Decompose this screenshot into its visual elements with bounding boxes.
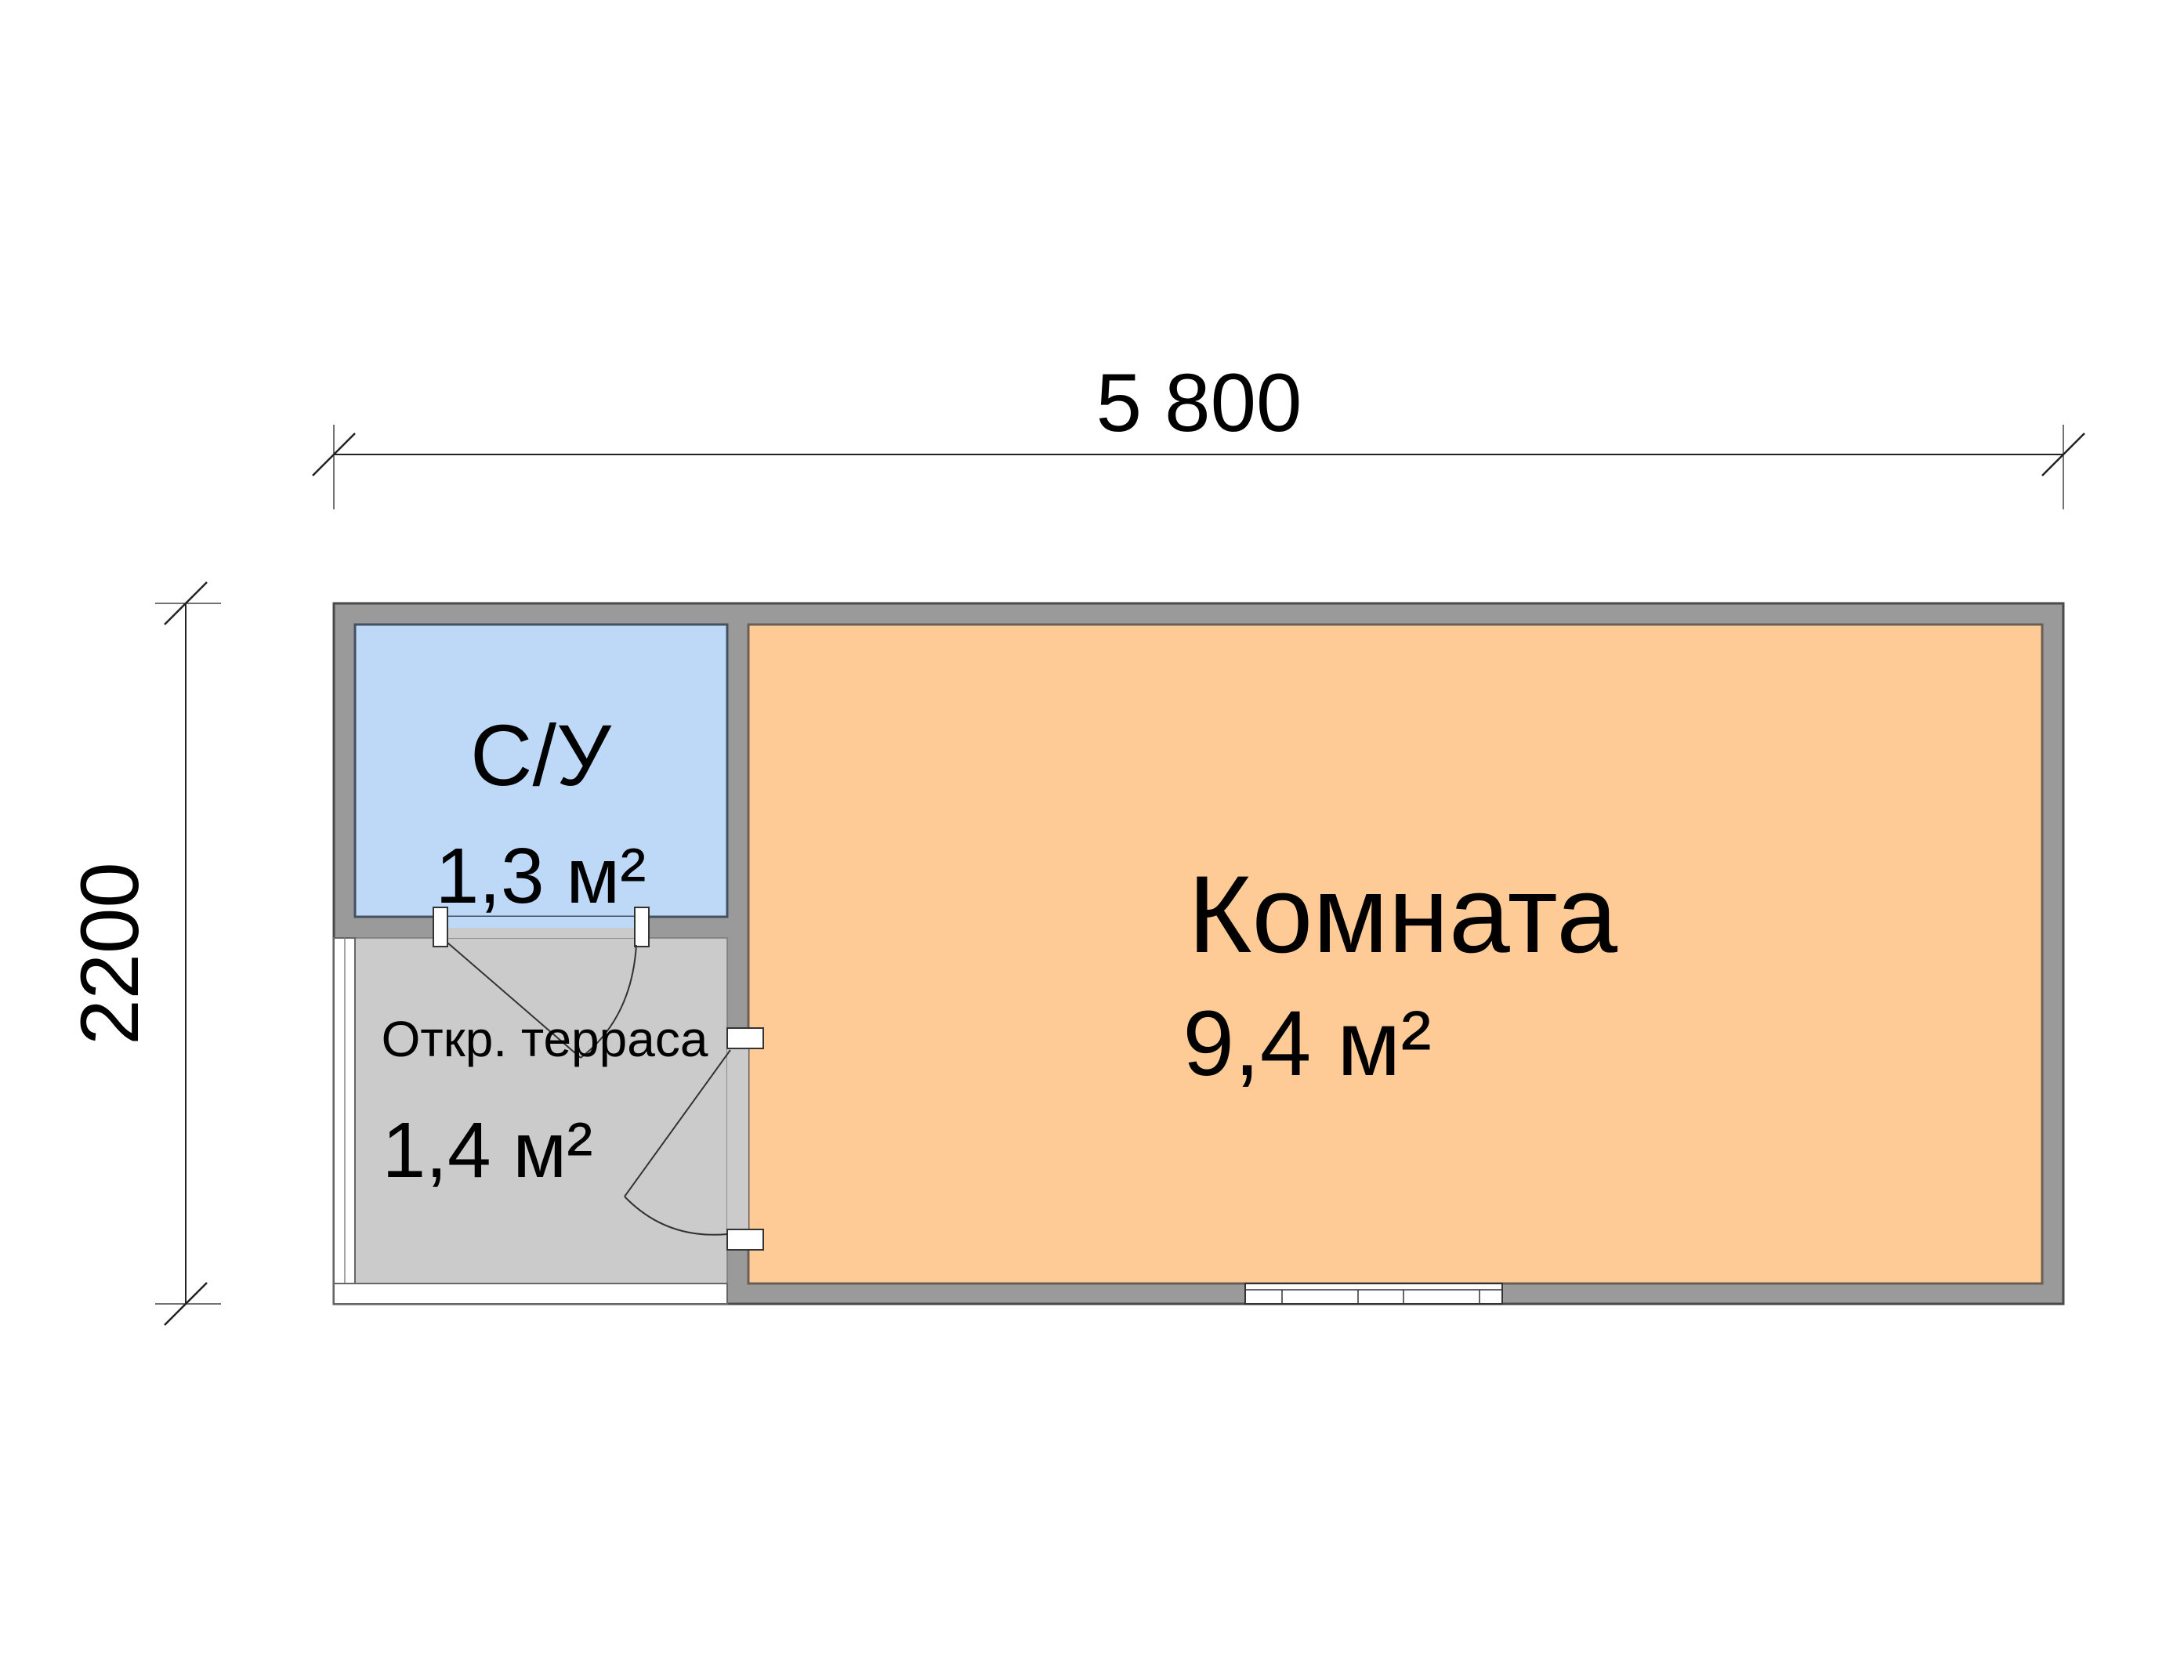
top-dimension: 5 800 bbox=[313, 357, 2084, 509]
main-room-area-label: 9,4 м² bbox=[1183, 992, 1431, 1095]
top-dimension-label: 5 800 bbox=[1096, 357, 1302, 449]
bathroom-area-label: 1,3 м² bbox=[436, 832, 647, 920]
bathroom-label: С/У bbox=[470, 708, 612, 804]
entrance-door-opening bbox=[727, 1048, 748, 1229]
left-dimension-label: 2200 bbox=[64, 862, 156, 1045]
entrance-door-jamb-bottom bbox=[727, 1229, 763, 1250]
entrance-door-jamb-top bbox=[727, 1028, 763, 1048]
terrace-open-edge-bottom bbox=[334, 1284, 727, 1304]
window bbox=[1245, 1284, 1502, 1304]
left-dimension: 2200 bbox=[64, 582, 221, 1325]
terrace-label: Откр. терраса bbox=[382, 1011, 708, 1067]
main-room-label: Комната bbox=[1188, 853, 1617, 976]
terrace-area-label: 1,4 м² bbox=[382, 1106, 593, 1194]
window-frame bbox=[1245, 1284, 1502, 1304]
floor-plan: 5 800 2200 С/У 1,3 м² Откр. терраса 1,4 … bbox=[0, 0, 2184, 1680]
floor-plan-drawing: 5 800 2200 С/У 1,3 м² Откр. терраса 1,4 … bbox=[0, 0, 2184, 1680]
bathroom-door-threshold bbox=[447, 928, 635, 938]
